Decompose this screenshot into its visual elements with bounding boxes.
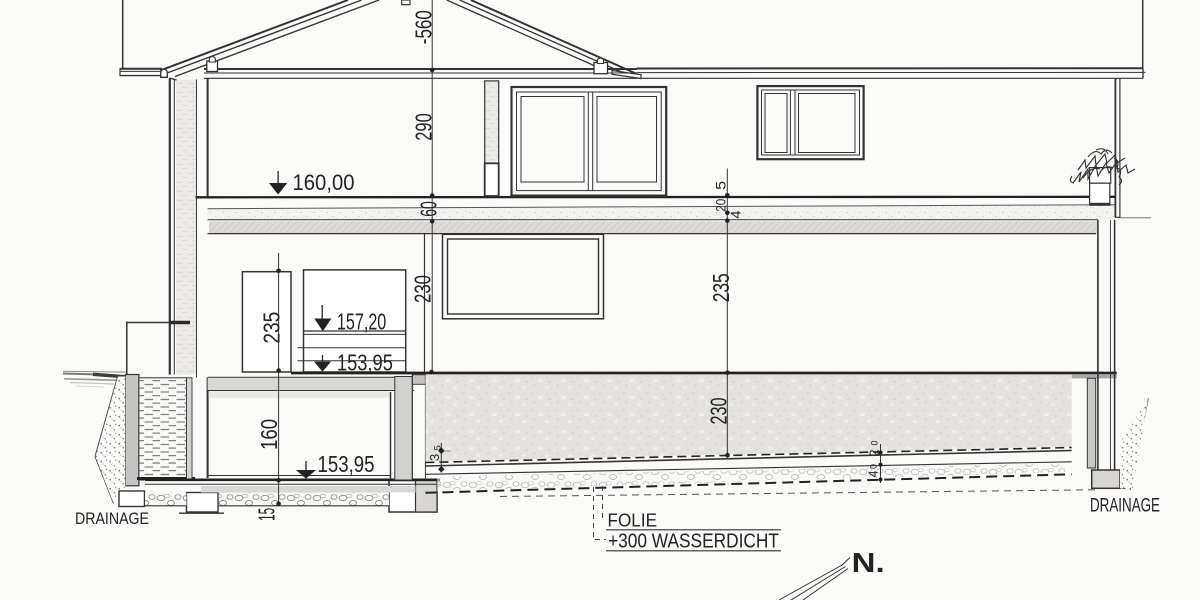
svg-text:60: 60 <box>416 201 442 217</box>
svg-text:235: 235 <box>259 312 285 344</box>
svg-text:160: 160 <box>256 419 282 450</box>
svg-text:4: 4 <box>867 471 881 478</box>
svg-text:230: 230 <box>706 398 732 425</box>
svg-text:FOLIE: FOLIE <box>608 511 658 531</box>
svg-text:160,00: 160,00 <box>293 170 355 195</box>
svg-text:2: 2 <box>868 450 882 457</box>
svg-text:0: 0 <box>870 440 880 445</box>
svg-text:157,20: 157,20 <box>337 308 386 334</box>
svg-text:4: 4 <box>728 210 744 218</box>
svg-text:153,95: 153,95 <box>337 350 393 376</box>
svg-text:153,95: 153,95 <box>318 451 375 477</box>
svg-text:5: 5 <box>433 445 444 450</box>
svg-text:0: 0 <box>869 464 879 469</box>
svg-text:3: 3 <box>427 454 442 461</box>
svg-text:N.: N. <box>852 547 885 578</box>
svg-text:235: 235 <box>708 273 734 302</box>
svg-text:5: 5 <box>713 181 729 190</box>
svg-text:290: 290 <box>411 113 437 141</box>
svg-text:DRAINAGE: DRAINAGE <box>1090 496 1160 517</box>
svg-text:-560: -560 <box>411 10 437 44</box>
svg-text:+300 WASSERDICHT: +300 WASSERDICHT <box>608 531 779 553</box>
svg-text:230: 230 <box>410 275 436 303</box>
svg-text:15: 15 <box>254 508 280 521</box>
svg-text:20: 20 <box>713 199 729 212</box>
svg-text:DRAINAGE: DRAINAGE <box>75 509 149 528</box>
